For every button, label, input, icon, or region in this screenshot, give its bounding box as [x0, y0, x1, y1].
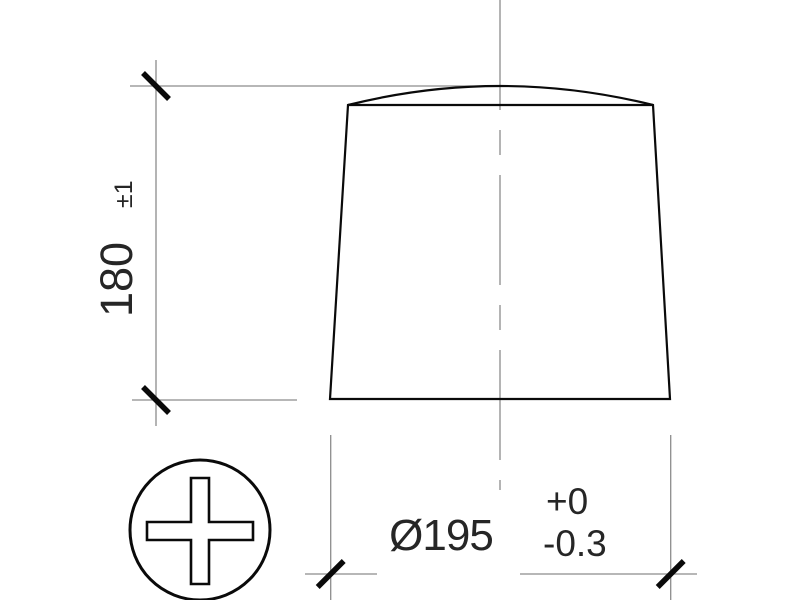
diameter-tolerance-lower: -0.3: [543, 523, 607, 564]
diameter-dimension-value: Ø195: [389, 511, 493, 560]
technical-drawing-canvas: 180 ±1 Ø195 +0 -0.3: [0, 0, 800, 600]
height-dimension-tolerance: ±1: [110, 180, 138, 208]
drawing-svg: 180 ±1 Ø195 +0 -0.3: [0, 0, 800, 600]
diameter-tolerance-upper: +0: [546, 481, 588, 522]
positive-polarity-icon: [130, 460, 270, 600]
height-dimension-value: 180: [91, 242, 142, 317]
